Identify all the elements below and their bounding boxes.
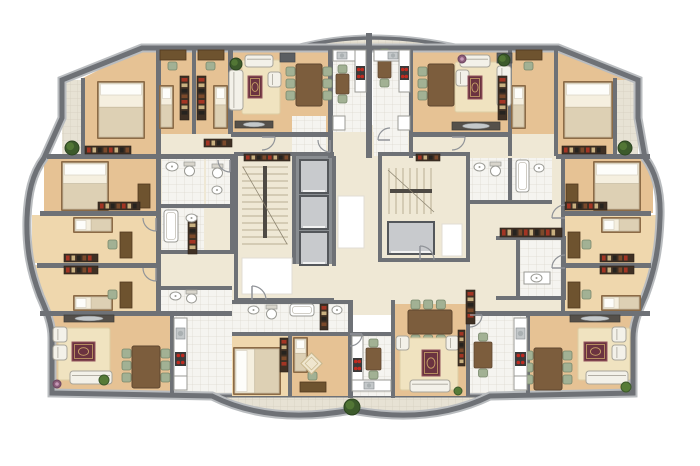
sink (176, 328, 185, 339)
chair (161, 349, 170, 358)
tree (498, 54, 510, 66)
chair (338, 65, 347, 73)
toilet (184, 162, 195, 176)
wall-segment (160, 204, 232, 208)
carpet (584, 342, 607, 361)
sofa (268, 72, 281, 87)
wardrobe (280, 338, 288, 372)
washbasin (531, 274, 542, 282)
tree (230, 58, 242, 70)
chair (286, 79, 295, 88)
bathtub (164, 210, 178, 242)
wardrobe (466, 290, 475, 324)
carpet (72, 342, 95, 361)
chair (108, 290, 117, 299)
desk (160, 50, 186, 60)
chair (479, 333, 488, 341)
chair (418, 79, 427, 88)
wall-segment (561, 211, 651, 216)
wardrobe (85, 146, 131, 154)
desk (300, 382, 326, 392)
chair (286, 91, 295, 100)
chair (411, 300, 420, 309)
wall-segment (516, 238, 520, 300)
wardrobe (600, 266, 634, 274)
chair (563, 375, 572, 384)
wardrobe (64, 266, 98, 274)
wall-segment (613, 78, 617, 156)
floor-mat (442, 224, 462, 256)
bathtub (516, 160, 529, 192)
sink (337, 52, 347, 59)
chair (563, 363, 572, 372)
wall-segment (466, 156, 470, 262)
wardrobe (180, 76, 189, 120)
single-bed (159, 85, 174, 129)
dining-table (408, 310, 452, 334)
elevator-car (300, 196, 328, 229)
chair (380, 79, 389, 87)
wall-segment (496, 296, 564, 300)
single-bed (601, 295, 641, 311)
wall-segment (234, 298, 334, 302)
dining-set (286, 64, 332, 106)
tv-console (64, 315, 114, 322)
wall-segment (156, 154, 161, 315)
chair (369, 339, 378, 347)
wall-segment (288, 334, 292, 396)
sofa (586, 371, 628, 384)
wall-segment (332, 156, 336, 266)
chair (582, 290, 591, 299)
toilet (490, 162, 501, 176)
dining-table (132, 346, 160, 388)
cooktop (515, 352, 526, 366)
floor-mat (338, 196, 364, 248)
sofa (229, 70, 243, 110)
small-table (366, 348, 381, 370)
wardrobe (320, 304, 328, 330)
chair (369, 371, 378, 379)
chair (418, 91, 427, 100)
wardrobe (64, 254, 98, 262)
carpet (468, 76, 482, 99)
small-table (336, 74, 349, 94)
wall-segment (40, 211, 158, 216)
washbasin (212, 186, 222, 194)
chair (323, 91, 332, 100)
wall-segment (81, 78, 85, 156)
desk (120, 232, 132, 258)
wardrobe (458, 330, 465, 366)
wall-segment (366, 33, 372, 158)
chair (108, 240, 117, 249)
dining-table (534, 348, 562, 390)
wardrobe (565, 202, 607, 210)
carpet (248, 76, 262, 98)
single-bed (73, 295, 113, 311)
desk (568, 232, 580, 258)
chair (479, 369, 488, 377)
sink (516, 328, 525, 339)
small-table-set (336, 65, 349, 103)
chair (323, 79, 332, 88)
chair (122, 349, 131, 358)
bathtub (290, 304, 314, 316)
plant (99, 375, 109, 385)
wardrobe (244, 154, 290, 161)
sofa (410, 380, 450, 392)
wardrobe (500, 228, 562, 237)
wall-segment (160, 286, 232, 290)
kitchen-counter (174, 376, 187, 390)
sofa (245, 55, 273, 67)
wardrobe (562, 146, 606, 154)
wall-segment (378, 156, 382, 262)
flowering-plant (53, 380, 61, 388)
chair (122, 361, 131, 370)
kitchen-counter (514, 376, 527, 390)
cooktop (400, 66, 409, 80)
tv-console (452, 122, 500, 130)
sink (364, 382, 374, 389)
tv-console (570, 315, 620, 322)
sofa (53, 327, 67, 342)
room-floor (518, 240, 562, 298)
kitchen-counter (333, 116, 345, 130)
plant (621, 382, 631, 392)
chair (168, 62, 177, 70)
tv-console (235, 121, 273, 128)
sink (388, 52, 398, 59)
plant (454, 387, 462, 395)
cooktop (353, 358, 362, 372)
chair (338, 95, 347, 103)
desk (516, 50, 542, 60)
toilet (186, 290, 197, 303)
sofa (612, 327, 626, 342)
wall-segment (234, 156, 238, 304)
dining-set (524, 348, 572, 390)
wall-segment (562, 238, 566, 300)
washbasin (166, 162, 178, 171)
sofa (446, 336, 459, 350)
wall-segment (391, 300, 395, 398)
floor-mat (242, 258, 292, 294)
wall-segment (466, 311, 650, 316)
wall-segment (554, 48, 558, 156)
wardrobe (416, 154, 440, 161)
wall-segment (232, 332, 394, 336)
floor-plan-page (0, 0, 700, 466)
toilet (266, 305, 277, 319)
small-table (474, 342, 492, 368)
wardrobe (197, 76, 206, 120)
wall-segment (556, 154, 650, 159)
washbasin (534, 164, 544, 172)
double-bed (233, 347, 281, 395)
desk (568, 282, 580, 308)
cooktop (356, 66, 365, 80)
elevator-car (300, 232, 328, 265)
single-bed (73, 217, 113, 233)
dining-table (428, 64, 454, 106)
sofa (456, 70, 469, 86)
wall-segment (508, 158, 512, 202)
double-bed (97, 81, 145, 139)
washbasin (474, 163, 485, 171)
chair (323, 67, 332, 76)
double-bed (563, 81, 613, 139)
sofa (612, 345, 626, 360)
dining-table (296, 64, 322, 106)
sofa (396, 336, 409, 350)
toilet (212, 164, 223, 178)
wardrobe (204, 139, 232, 147)
chair (161, 361, 170, 370)
chair (524, 62, 533, 70)
planter-box (280, 53, 295, 62)
wardrobe (600, 254, 634, 262)
chair (161, 373, 170, 382)
dining-set (122, 346, 170, 388)
chair (582, 240, 591, 249)
chair (122, 373, 131, 382)
elevator-car (300, 160, 328, 193)
chair (206, 62, 215, 70)
wardrobe (498, 76, 507, 120)
wall-segment (231, 132, 330, 137)
chair (286, 67, 295, 76)
washbasin (332, 306, 342, 314)
flowering-plant (458, 55, 466, 63)
cooktop (175, 352, 186, 366)
chair (418, 67, 427, 76)
single-bed (213, 85, 228, 129)
wall-segment (192, 48, 196, 134)
tree (344, 399, 360, 415)
washbasin (170, 292, 181, 300)
wardrobe (98, 202, 140, 210)
sofa (53, 345, 67, 360)
desk (198, 50, 224, 60)
chair (436, 300, 445, 309)
tree (65, 141, 79, 155)
washbasin (248, 306, 259, 314)
tree (618, 141, 632, 155)
dining-set (408, 300, 452, 344)
single-bed (601, 217, 641, 233)
kitchen-counter (398, 116, 410, 130)
desk (120, 282, 132, 308)
wall-segment (170, 315, 174, 395)
elevator-car (388, 222, 434, 254)
washbasin (186, 214, 197, 222)
floor-plan (0, 0, 700, 466)
chair (424, 300, 433, 309)
wall-segment (292, 156, 296, 264)
carpet (422, 350, 440, 376)
wall-segment (378, 258, 468, 262)
chair (563, 351, 572, 360)
single-bed (511, 85, 526, 129)
